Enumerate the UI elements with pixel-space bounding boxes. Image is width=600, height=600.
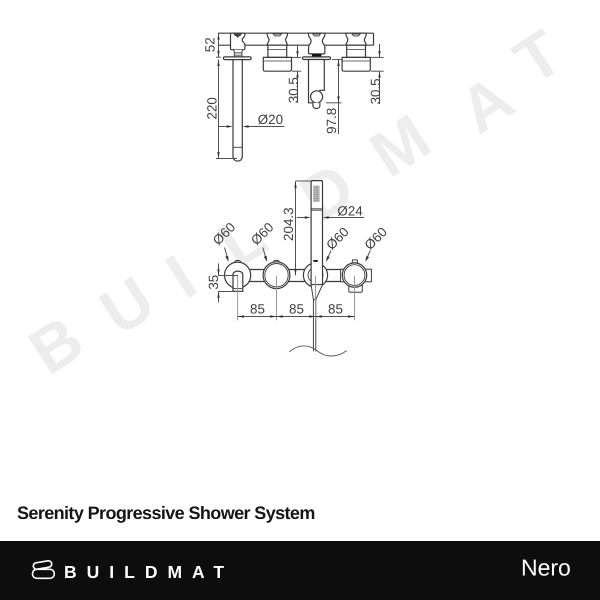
svg-text:85: 85 bbox=[250, 302, 265, 317]
svg-text:30.5: 30.5 bbox=[286, 77, 301, 103]
svg-text:52: 52 bbox=[203, 37, 218, 52]
svg-text:85: 85 bbox=[289, 302, 304, 317]
svg-text:97.8: 97.8 bbox=[324, 108, 339, 134]
svg-text:35: 35 bbox=[206, 275, 221, 290]
svg-text:Ø24: Ø24 bbox=[337, 203, 363, 218]
svg-text:Nero: Nero bbox=[521, 555, 571, 581]
svg-text:BUILDMAT: BUILDMAT bbox=[64, 562, 234, 582]
svg-text:30.5: 30.5 bbox=[368, 78, 383, 104]
svg-text:Serenity Progressive Shower Sy: Serenity Progressive Shower System bbox=[17, 503, 315, 523]
svg-text:85: 85 bbox=[328, 302, 343, 317]
svg-text:220: 220 bbox=[204, 97, 219, 119]
svg-text:204.3: 204.3 bbox=[281, 207, 296, 241]
svg-text:Ø20: Ø20 bbox=[258, 112, 283, 127]
